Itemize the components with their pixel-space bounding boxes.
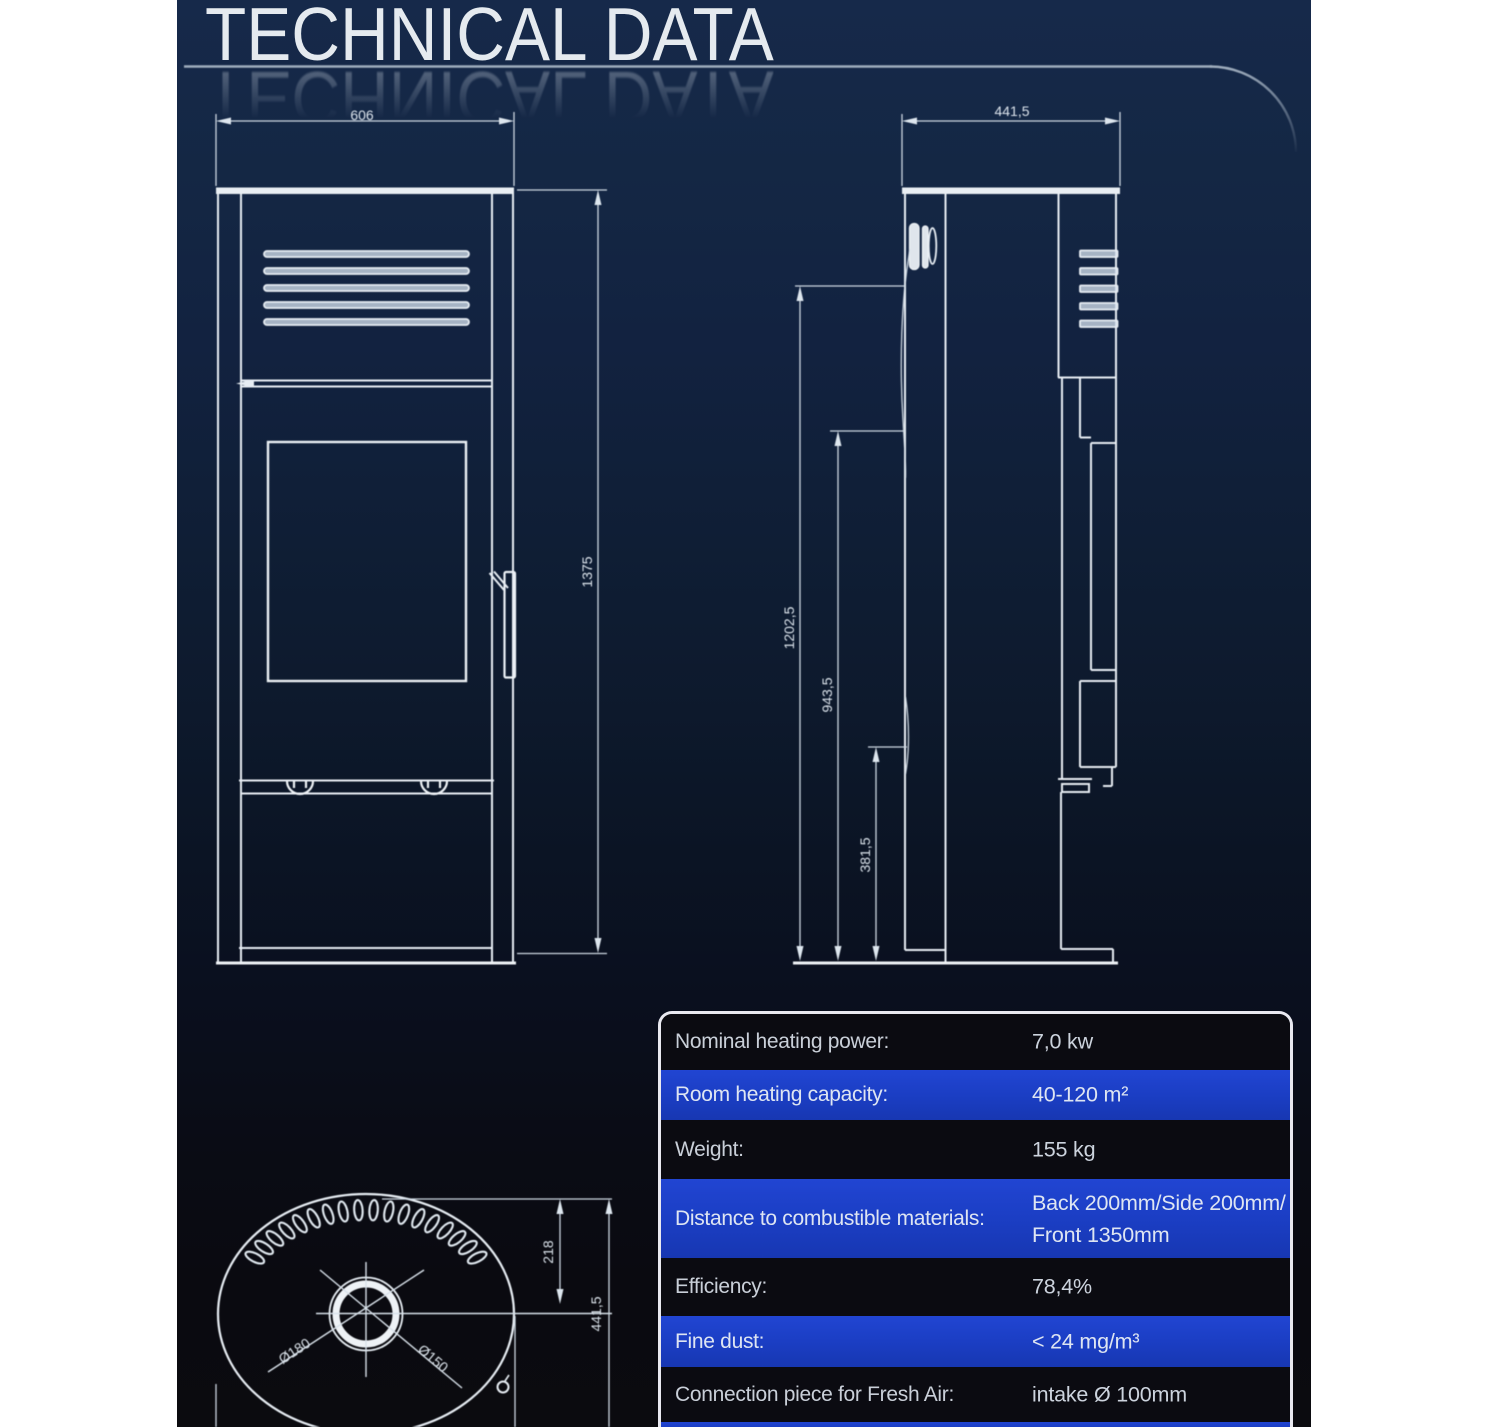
svg-text:Ø150: Ø150 [415,1341,452,1375]
svg-text:441,5: 441,5 [588,1296,604,1331]
svg-text:1202,5: 1202,5 [781,606,797,649]
svg-text:606: 606 [350,107,374,123]
svg-text:1375: 1375 [579,556,595,587]
svg-text:381,5: 381,5 [857,837,873,872]
svg-text:441,5: 441,5 [994,103,1029,119]
svg-text:Ø180: Ø180 [276,1335,314,1367]
svg-text:943,5: 943,5 [819,677,835,712]
svg-text:218: 218 [540,1240,556,1264]
